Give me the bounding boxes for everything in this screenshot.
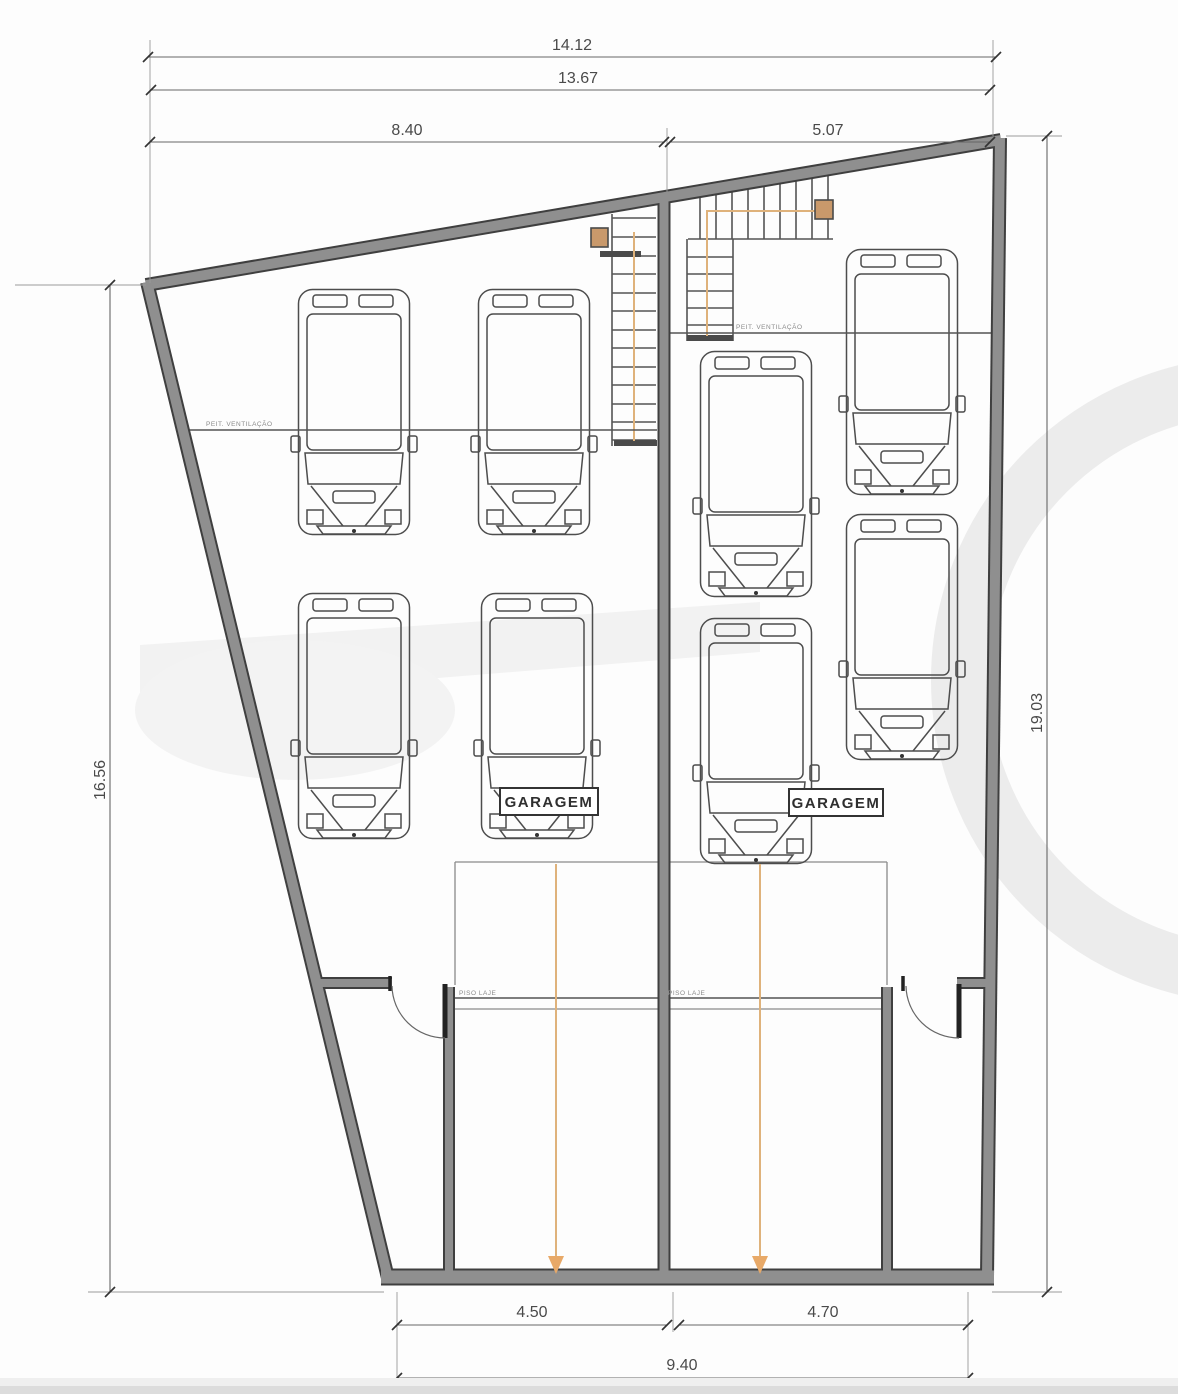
ventilation-line-left: PEIT. VENTILAÇÃO bbox=[183, 419, 657, 430]
car-left-garage-2 bbox=[471, 290, 597, 535]
left-staircase bbox=[591, 214, 657, 446]
drive-path-right bbox=[752, 864, 768, 1274]
garagem-right-text: GARAGEM bbox=[792, 795, 881, 812]
dim-left-depth: 16.56 bbox=[92, 760, 109, 800]
garage-floor-plan-page: PEIT. VENTILAÇÃO PEIT. VENTILAÇÃO bbox=[0, 0, 1178, 1394]
drive-path-left bbox=[548, 864, 564, 1274]
dim-left-bay-width: 8.40 bbox=[391, 122, 422, 139]
stair-entry-marker-left bbox=[591, 228, 608, 247]
dim-right-bay-width: 5.07 bbox=[812, 122, 843, 139]
floor-plan-svg: PEIT. VENTILAÇÃO PEIT. VENTILAÇÃO bbox=[0, 0, 1178, 1394]
ventilation-label-left: PEIT. VENTILAÇÃO bbox=[206, 419, 273, 428]
dim-bottom-right-bay: 4.70 bbox=[807, 1304, 838, 1321]
dim-inner-width: 13.67 bbox=[558, 70, 598, 87]
room-label-garagem-right: GARAGEM bbox=[789, 789, 883, 816]
stair-entry-marker-right bbox=[815, 200, 833, 219]
dim-right-depth: 19.03 bbox=[1029, 693, 1046, 733]
dim-bottom-total: 9.40 bbox=[666, 1357, 697, 1374]
floor-label-left: PISO LAJE bbox=[459, 990, 497, 997]
page-edge-band-dark bbox=[0, 1386, 1178, 1394]
car-left-garage-1 bbox=[291, 290, 417, 535]
garagem-left-text: GARAGEM bbox=[505, 794, 594, 811]
car-right-garage-2 bbox=[693, 352, 819, 597]
car-right-garage-1 bbox=[839, 250, 965, 495]
door-right bbox=[903, 976, 959, 1038]
dim-bottom-left-bay: 4.50 bbox=[516, 1304, 547, 1321]
door-left bbox=[390, 976, 445, 1038]
dim-overall-width: 14.12 bbox=[552, 37, 592, 54]
ventilation-label-right: PEIT. VENTILAÇÃO bbox=[736, 322, 803, 331]
right-staircase bbox=[687, 173, 833, 341]
floor-label-right: PISO LAJE bbox=[668, 990, 706, 997]
ventilation-line-right: PEIT. VENTILAÇÃO bbox=[670, 322, 992, 333]
room-label-garagem-left: GARAGEM bbox=[500, 788, 598, 815]
ramp-projection-lines bbox=[455, 862, 887, 1009]
page-edge-band-light bbox=[0, 1378, 1178, 1386]
